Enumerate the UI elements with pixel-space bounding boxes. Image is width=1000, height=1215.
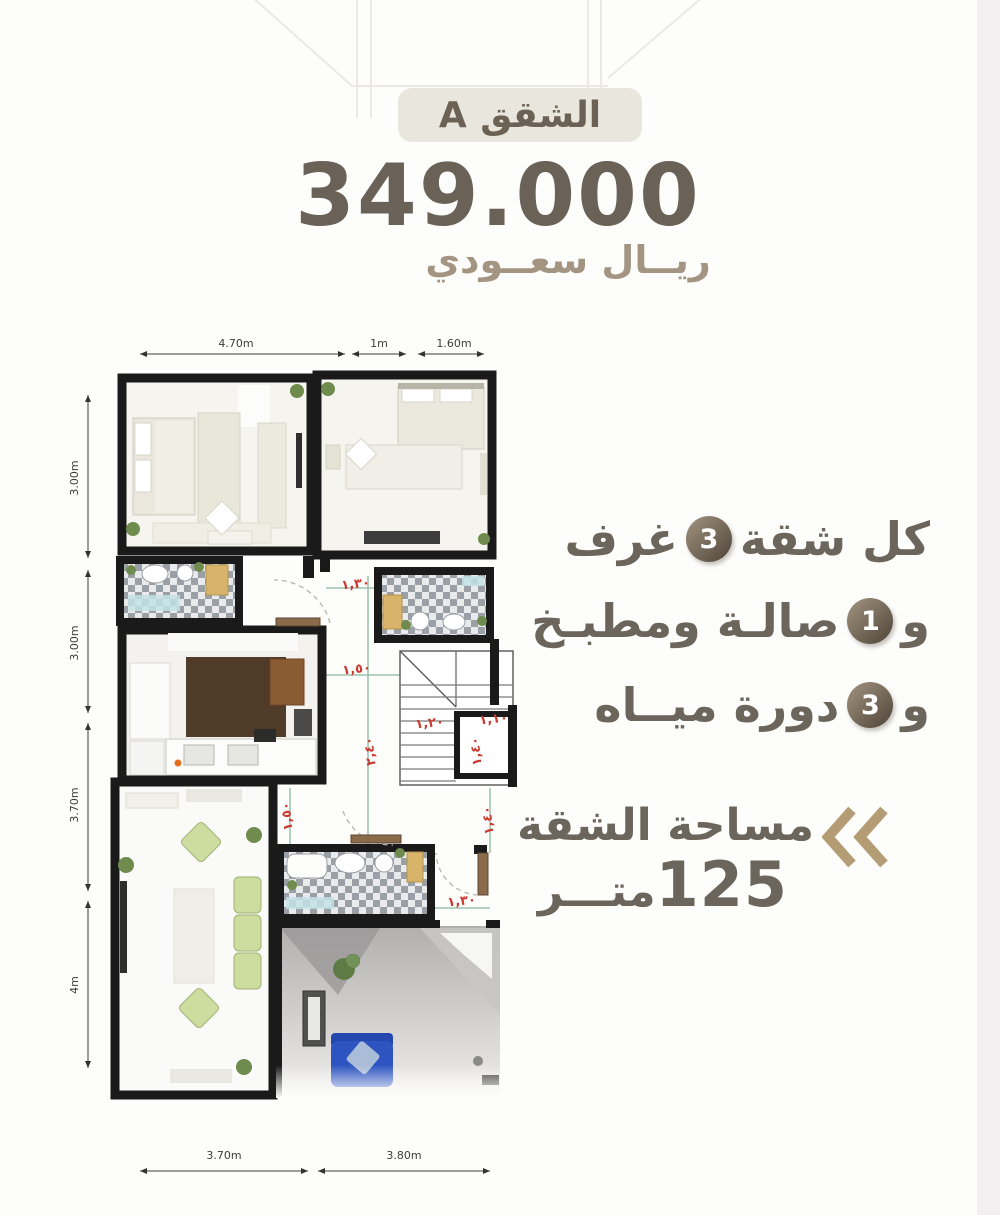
count-badge: 1 (847, 598, 893, 644)
feature-item-rooms: كل شقة 3 غرف (564, 512, 930, 566)
flyer-page: الشقق A 349.000 ريــال سعــودي كل شقة 3 … (0, 0, 1000, 1215)
side-strip (977, 0, 1000, 1215)
red-dimension-label: ٢,٤٠ (362, 736, 380, 766)
bathroom-3 (280, 848, 431, 918)
dimension-label: 3.70m (68, 787, 81, 822)
bathroom-1 (120, 560, 239, 622)
red-dimension-label: ١,٤٠ (480, 805, 498, 835)
area-value: 125 (656, 848, 788, 921)
red-dimension-label: ١,٥٠ (279, 801, 297, 831)
majlis-room (272, 920, 500, 1098)
dimension-label: 3.00m (68, 625, 81, 660)
red-dimension-label: ١,٥٠ (342, 661, 372, 679)
double-chevron-icon (822, 804, 892, 872)
bedroom-1 (122, 378, 311, 551)
area-unit: متـــر (538, 866, 656, 917)
red-dimension-label: ١,٣٠ (447, 893, 477, 911)
price-text: 349.000 (248, 146, 748, 246)
count-badge: 3 (847, 682, 893, 728)
feature-item-hall-kitchen: و 1 صالـة ومطبـخ (531, 594, 930, 648)
feature-prefix: و (901, 678, 930, 732)
feature-suffix: دورة ميــاه (594, 678, 839, 732)
feature-item-bathrooms: و 3 دورة ميــاه (594, 678, 930, 732)
bedroom-2 (317, 375, 492, 555)
dimension-label: 3.80m (386, 1149, 421, 1162)
area-value-line: 125 متـــر (538, 848, 788, 921)
feature-suffix: غرف (564, 512, 677, 566)
floorplan: 4.70m 1m 1.60m 3.00m 3.00m 3.70m 4m 3.70… (58, 333, 520, 1183)
feature-prefix: كل شقة (740, 512, 930, 566)
bathroom-2 (378, 571, 490, 639)
red-dimension-label: ١,٤٠ (468, 736, 486, 766)
red-dimension-label: ١,٣٠ (341, 576, 371, 594)
dimension-label: 3.70m (206, 1149, 241, 1162)
dimension-label: 1m (370, 337, 388, 350)
apartment-badge: الشقق A (398, 88, 642, 142)
dimension-label: 4m (68, 976, 81, 994)
red-dimension-label: ١,١٠ (479, 711, 509, 729)
dimension-label: 1.60m (436, 337, 471, 350)
living-room (115, 782, 273, 1095)
kitchen (122, 630, 322, 780)
dimension-label: 3.00m (68, 460, 81, 495)
dimension-label: 4.70m (218, 337, 253, 350)
currency-text: ريــال سعــودي (368, 238, 768, 282)
red-dimension-label: ١,٢٠ (415, 715, 445, 733)
count-badge: 3 (686, 516, 732, 562)
feature-suffix: صالـة ومطبـخ (531, 594, 839, 648)
apartment-badge-label: الشقق A (439, 95, 601, 136)
area-label: مساحة الشقة (517, 800, 814, 851)
feature-prefix: و (901, 594, 930, 648)
